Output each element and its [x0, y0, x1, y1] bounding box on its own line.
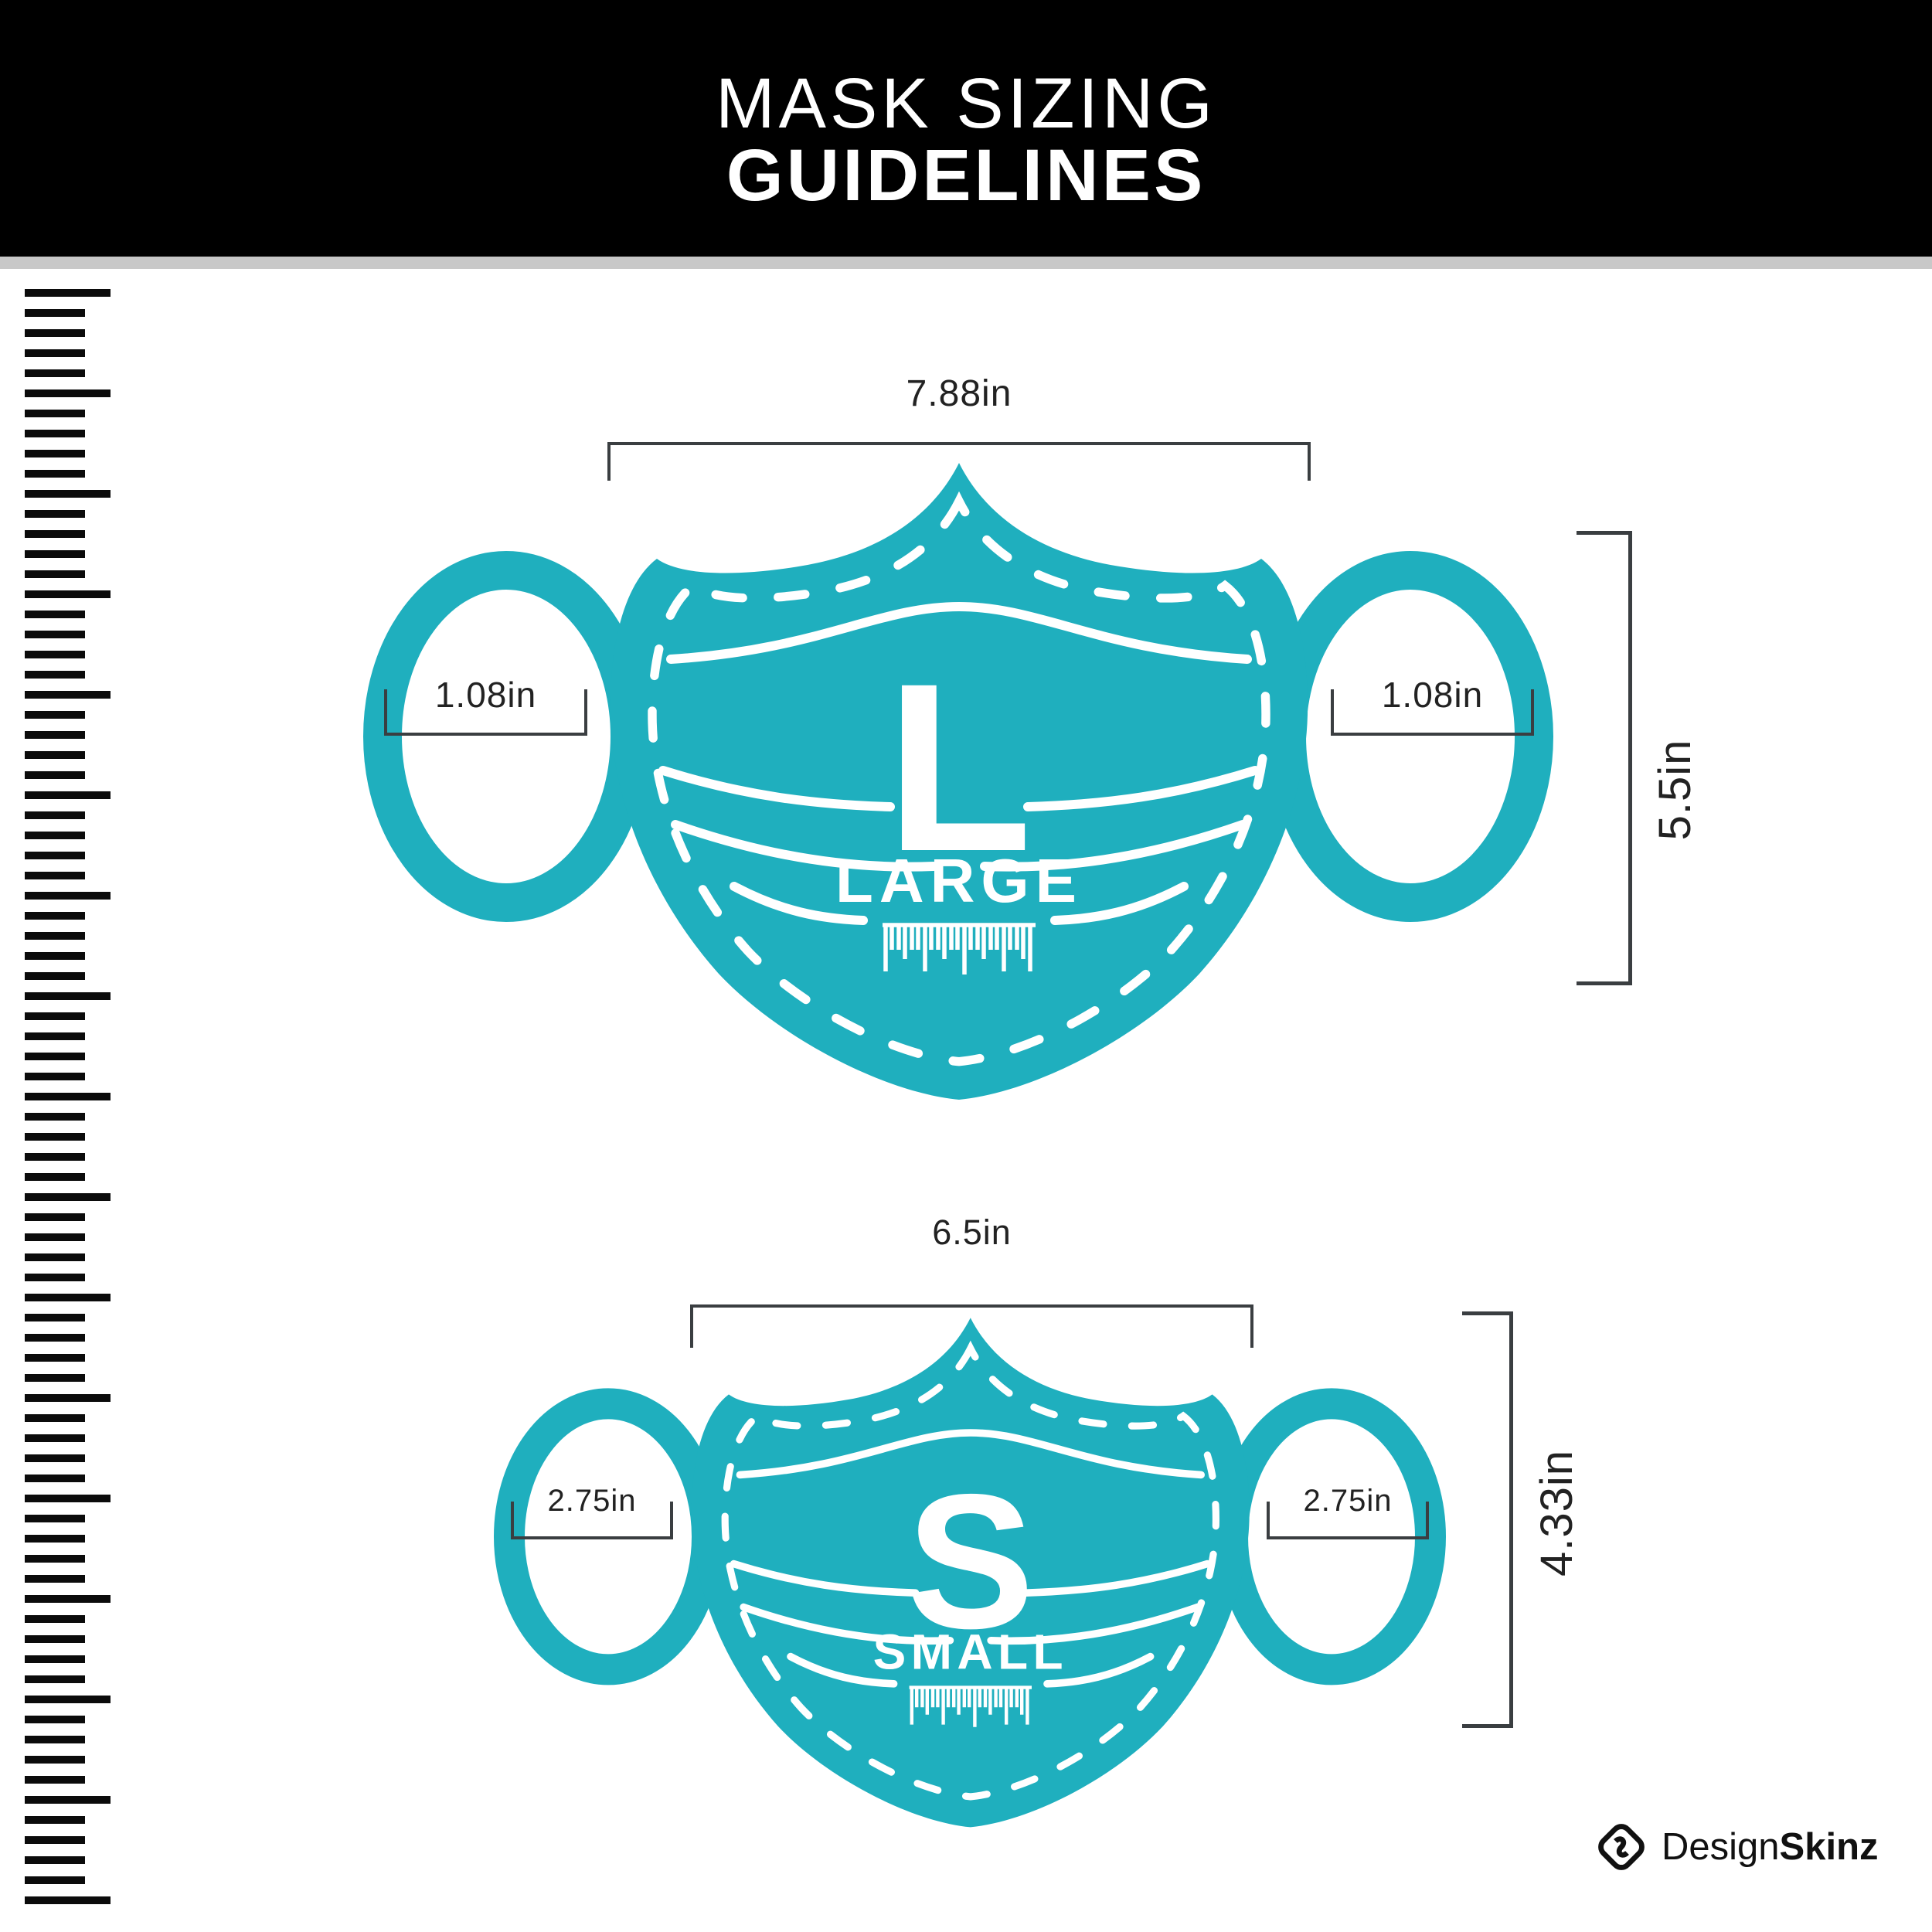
ruler-tick: [25, 490, 111, 498]
ruler-tick: [25, 329, 85, 337]
ruler-tick: [25, 1535, 85, 1543]
ruler-graphic: [25, 289, 111, 1904]
ruler-tick: [25, 1555, 85, 1563]
ruler-tick: [25, 1816, 85, 1824]
ruler-tick: [25, 1274, 85, 1281]
ruler-tick: [25, 1173, 85, 1181]
small-mask-graphic: S SMALL: [488, 1315, 1452, 1832]
mask-sizing-infographic: MASK SIZING GUIDELINES L LARGE 7.88in 1.…: [0, 0, 1932, 1932]
ruler-tick: [25, 892, 111, 900]
ruler-tick: [25, 410, 85, 417]
ruler-tick: [25, 1776, 85, 1784]
ruler-tick: [25, 631, 85, 638]
ruler-tick: [25, 590, 111, 598]
ruler-tick: [25, 731, 85, 739]
ruler-tick: [25, 1434, 85, 1442]
ruler-tick: [25, 1374, 85, 1382]
ruler-tick: [25, 1193, 111, 1201]
large-left-ear-loop-icon: [383, 570, 630, 903]
ruler-tick: [25, 711, 85, 719]
small-mask-word: SMALL: [873, 1624, 1068, 1680]
ruler-tick: [25, 952, 85, 960]
ruler-tick: [25, 289, 111, 297]
small-right-ear-bracket: [1267, 1502, 1429, 1539]
ruler-tick: [25, 1093, 111, 1100]
small-width-bracket: [690, 1304, 1253, 1348]
ruler-tick: [25, 1454, 85, 1462]
ruler-tick: [25, 1575, 85, 1583]
ruler-tick: [25, 1113, 85, 1121]
ruler-tick: [25, 1876, 85, 1884]
ruler-tick: [25, 1696, 111, 1703]
ruler-tick: [25, 691, 111, 699]
ruler-tick: [25, 972, 85, 980]
ruler-tick: [25, 1053, 85, 1060]
ruler-tick: [25, 1716, 85, 1723]
ruler-tick: [25, 430, 85, 437]
large-height-bracket: [1577, 531, 1632, 985]
ruler-tick: [25, 852, 85, 859]
ruler-tick: [25, 1675, 85, 1683]
ruler-tick: [25, 611, 85, 618]
ruler-tick: [25, 992, 111, 1000]
ruler-tick: [25, 1233, 85, 1241]
ruler-tick: [25, 1515, 85, 1522]
brand-name-bold: Skinz: [1780, 1826, 1879, 1868]
ruler-tick: [25, 550, 85, 558]
large-mask-graphic: L LARGE: [355, 460, 1561, 1105]
brand-name-regular: Design: [1662, 1826, 1780, 1868]
brand-mark-icon: [1592, 1818, 1651, 1876]
small-height-label: 4.33in: [1534, 1436, 1580, 1590]
ruler-tick: [25, 1394, 111, 1402]
ruler-tick: [25, 1314, 85, 1321]
ruler-tick: [25, 1896, 111, 1904]
large-right-ear-loop-icon: [1287, 570, 1534, 903]
ruler-tick: [25, 1495, 111, 1502]
ruler-tick: [25, 1073, 85, 1080]
header-banner: MASK SIZING GUIDELINES: [0, 0, 1932, 257]
ruler-tick: [25, 1615, 85, 1623]
ruler-tick: [25, 369, 85, 377]
small-left-ear-bracket: [511, 1502, 673, 1539]
ruler-tick: [25, 1796, 111, 1804]
ruler-tick: [25, 1475, 85, 1482]
small-width-label: 6.5in: [690, 1215, 1253, 1250]
ruler-tick: [25, 470, 85, 478]
ruler-tick: [25, 1294, 111, 1301]
ruler-tick: [25, 1414, 85, 1422]
large-mask-word: LARGE: [835, 846, 1083, 915]
ruler-tick: [25, 389, 111, 397]
ruler-tick: [25, 932, 85, 940]
ruler-tick: [25, 651, 85, 658]
ruler-tick: [25, 1756, 85, 1764]
ruler-tick: [25, 1133, 85, 1141]
ruler-tick: [25, 872, 85, 879]
ruler-tick: [25, 1856, 85, 1864]
divider-strip: [0, 257, 1932, 269]
ruler-tick: [25, 450, 85, 457]
large-height-label: 5.5in: [1652, 713, 1699, 867]
ruler-tick: [25, 832, 85, 839]
ruler-tick: [25, 751, 85, 759]
ruler-tick: [25, 1595, 111, 1603]
ruler-tick: [25, 671, 85, 679]
title-line-2: GUIDELINES: [0, 139, 1932, 213]
title-line-1: MASK SIZING: [0, 68, 1932, 139]
ruler-tick: [25, 570, 85, 578]
ruler-tick: [25, 1836, 85, 1844]
ruler-tick: [25, 811, 85, 819]
ruler-tick: [25, 771, 85, 779]
ruler-tick: [25, 530, 85, 538]
ruler-tick: [25, 1253, 85, 1261]
large-right-ear-bracket: [1331, 689, 1534, 736]
ruler-tick: [25, 1334, 85, 1342]
small-height-bracket: [1462, 1311, 1513, 1728]
ruler-tick: [25, 1032, 85, 1040]
ruler-tick: [25, 1354, 85, 1362]
ruler-tick: [25, 1655, 85, 1663]
ruler-tick: [25, 1012, 85, 1020]
ruler-tick: [25, 791, 111, 799]
brand-name: DesignSkinz: [1662, 1828, 1879, 1866]
ruler-tick: [25, 510, 85, 518]
brand-logo: DesignSkinz: [1592, 1818, 1879, 1876]
ruler-tick: [25, 1736, 85, 1743]
large-left-ear-bracket: [384, 689, 587, 736]
ruler-tick: [25, 1213, 85, 1221]
ruler-tick: [25, 309, 85, 317]
large-width-bracket: [607, 442, 1311, 481]
ruler-tick: [25, 1635, 85, 1643]
ruler-tick: [25, 1153, 85, 1161]
ruler-tick: [25, 349, 85, 357]
large-width-label: 7.88in: [607, 376, 1311, 413]
ruler-tick: [25, 912, 85, 920]
